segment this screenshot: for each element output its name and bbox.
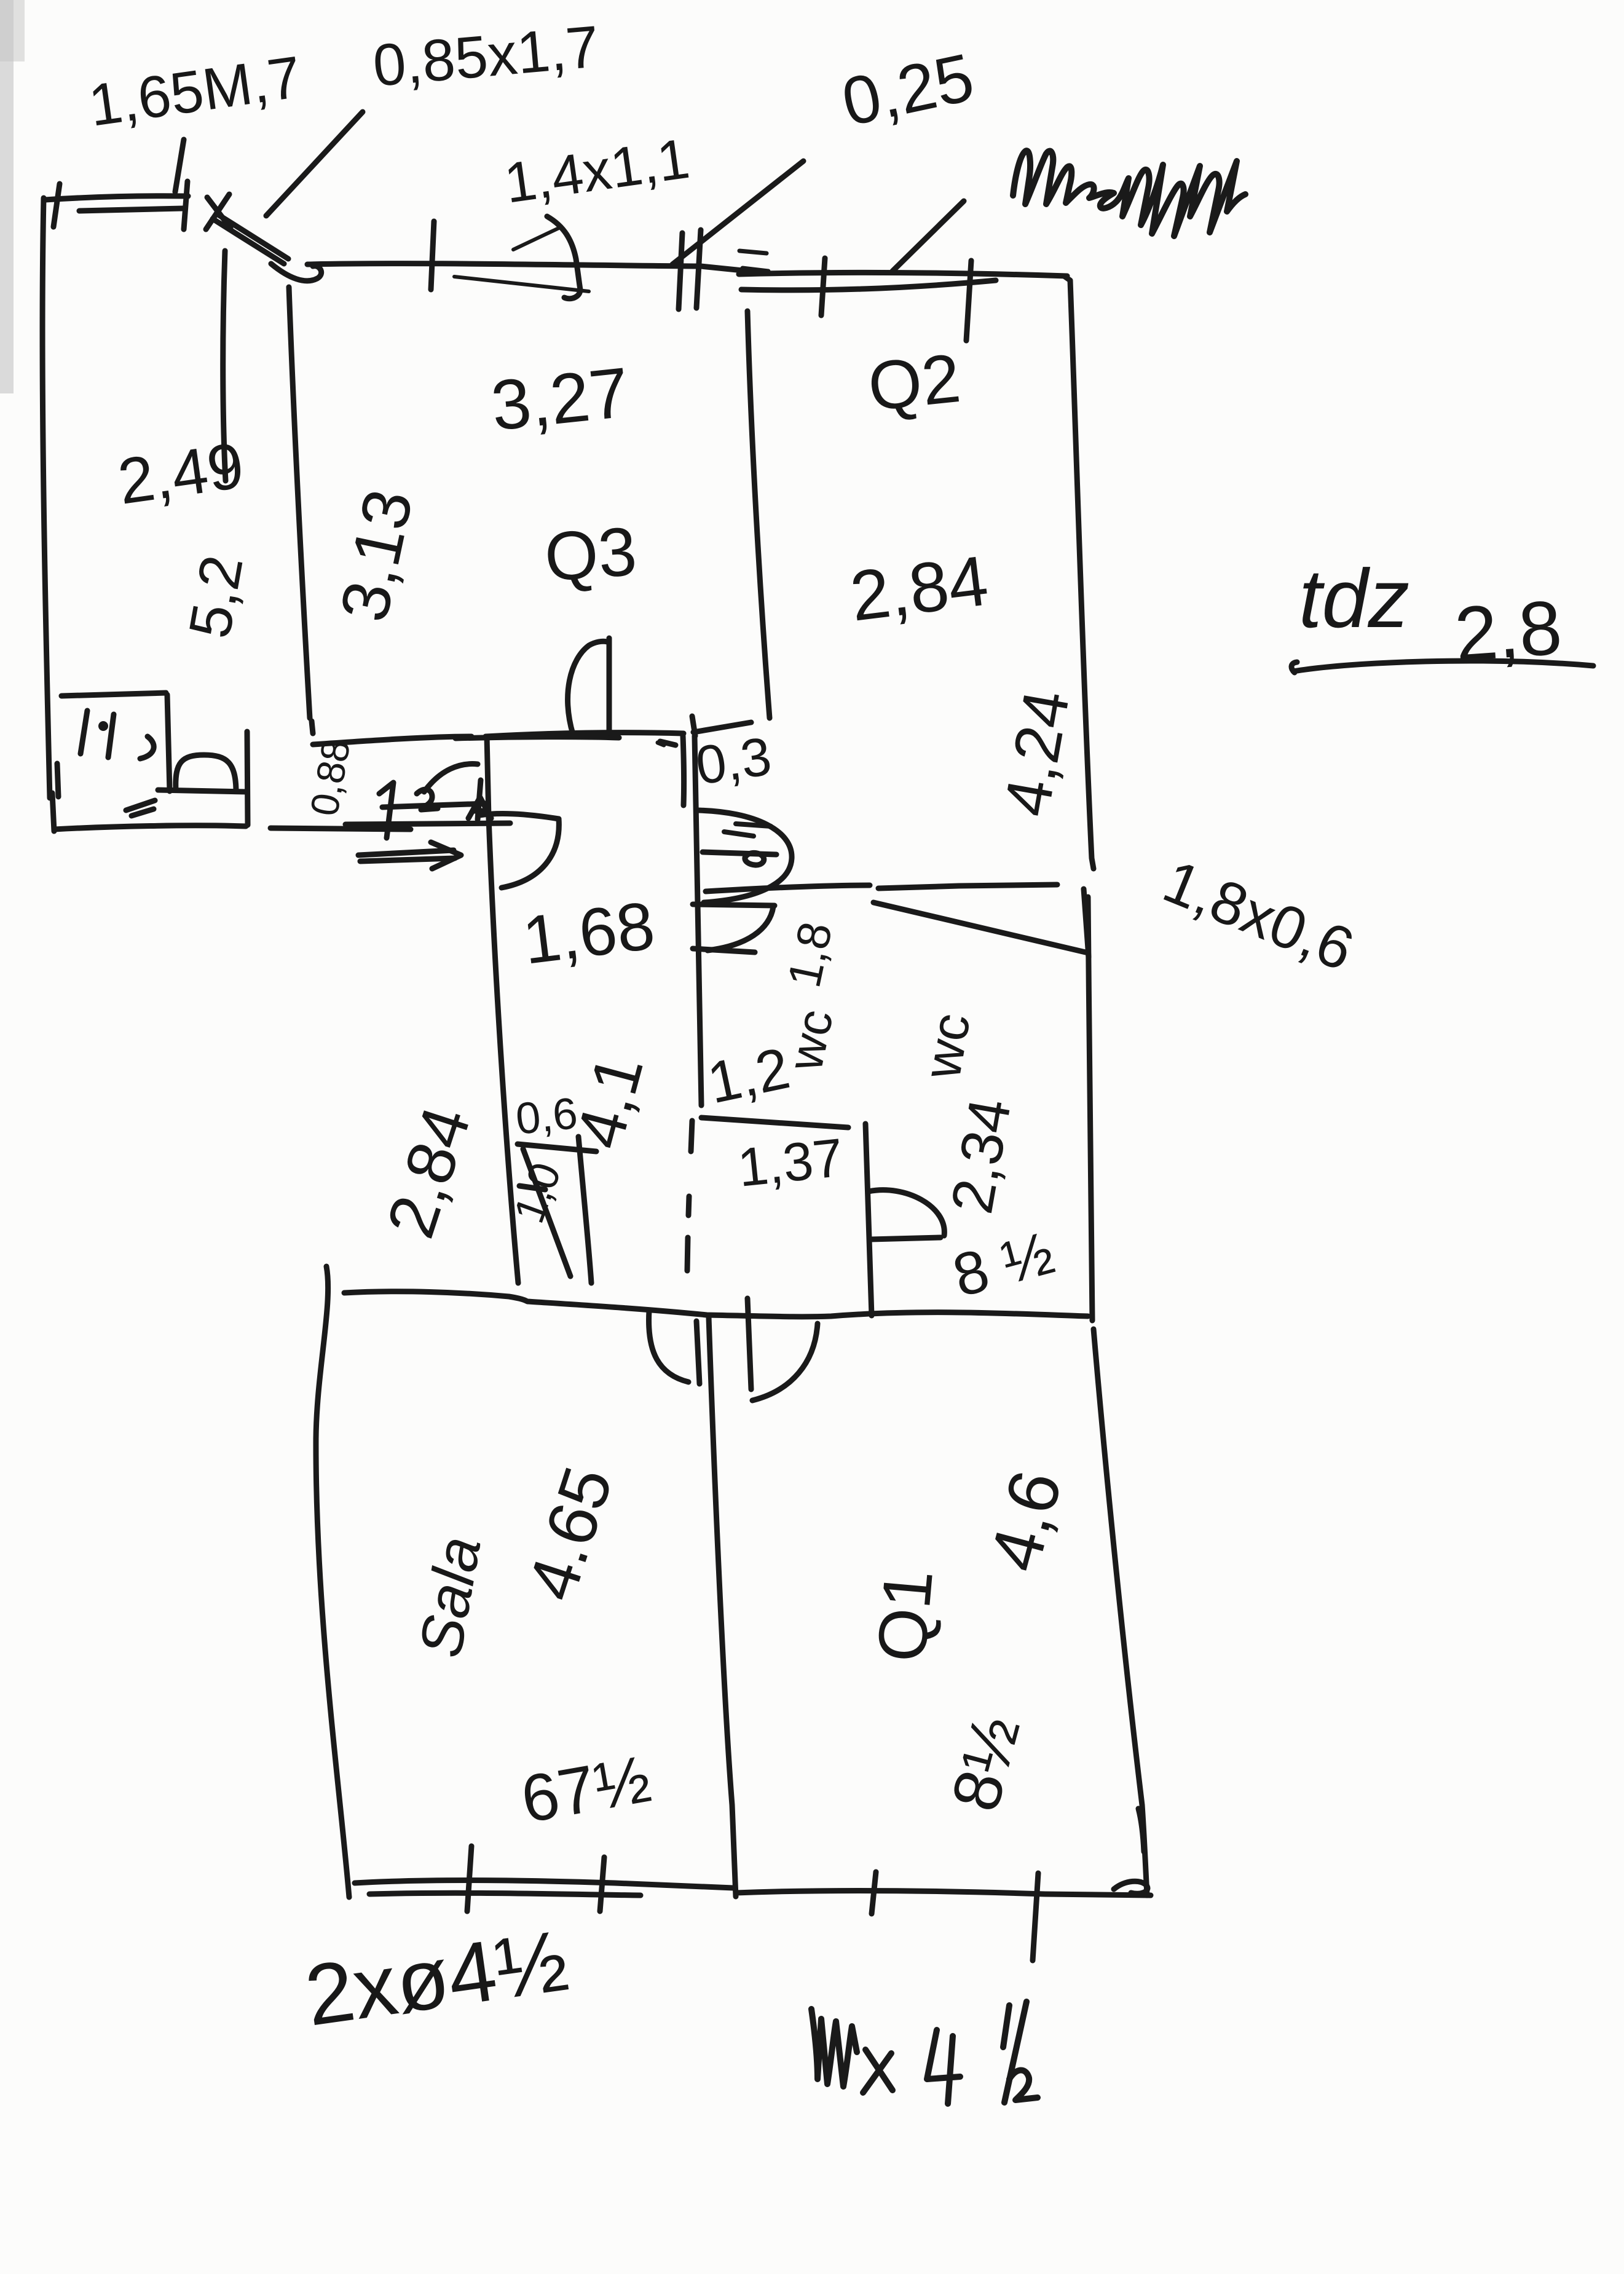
svg-text:Q3: Q3 (542, 513, 639, 596)
svg-text:tdz: tdz (1299, 552, 1409, 645)
svg-text:1,37: 1,37 (735, 1127, 846, 1198)
svg-text:0,6: 0,6 (513, 1089, 580, 1144)
svg-text:Q1: Q1 (862, 1566, 947, 1665)
svg-text:5,2: 5,2 (176, 551, 256, 643)
svg-text:2,84: 2,84 (846, 541, 992, 636)
svg-text:Q2: Q2 (864, 339, 964, 425)
svg-text:wc: wc (912, 1009, 982, 1083)
svg-text:1,68: 1,68 (519, 888, 658, 979)
svg-text:3,27: 3,27 (487, 353, 633, 446)
svg-text:0,3: 0,3 (692, 725, 775, 796)
